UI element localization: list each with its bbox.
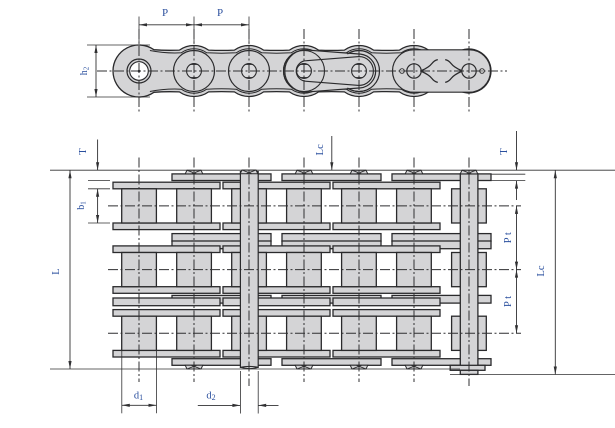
svg-text:T: T <box>499 148 510 155</box>
svg-text:d1: d1 <box>134 391 143 403</box>
svg-text:d2: d2 <box>206 391 215 403</box>
svg-text:P: P <box>162 7 168 19</box>
svg-text:L: L <box>51 268 62 274</box>
svg-text:T: T <box>78 148 89 155</box>
svg-text:P: P <box>217 7 223 19</box>
svg-text:Lc: Lc <box>315 144 326 155</box>
svg-text:P t: P t <box>503 296 514 307</box>
svg-text:P t: P t <box>503 232 514 243</box>
svg-text:Lc: Lc <box>536 265 547 276</box>
